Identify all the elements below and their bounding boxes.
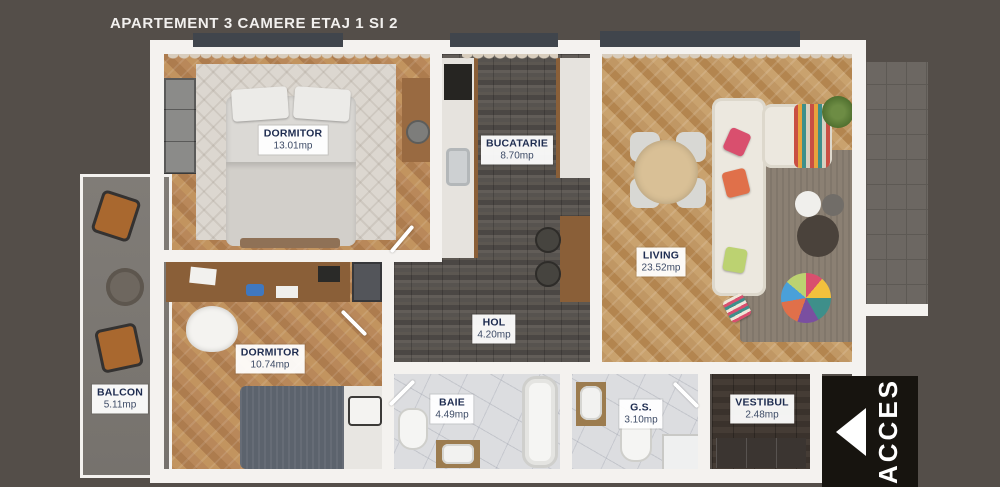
sink-gs [580, 386, 602, 420]
stove [444, 64, 472, 100]
window-bucatarie [450, 33, 558, 47]
room-area: 5.11mp [97, 400, 143, 411]
room-label-vestibul: VESTIBUL 2.48mp [730, 395, 794, 424]
wall-bucatarie-living [590, 40, 602, 374]
desk-item-blue [246, 284, 264, 296]
bed-pillow [293, 86, 351, 122]
sink-baie [442, 444, 474, 464]
kitchen-sink [446, 148, 470, 186]
curtain-bucatarie [462, 54, 558, 66]
room-name: BUCATARIE [486, 138, 548, 150]
bed-pillow [348, 396, 382, 426]
window-living [600, 31, 800, 47]
room-area: 3.10mp [624, 415, 657, 426]
wall-clock [406, 120, 430, 144]
cabinet-dormitor-2 [352, 262, 382, 302]
room-label-baie: BAIE 4.49mp [430, 395, 473, 424]
room-floor-hol [394, 262, 442, 362]
room-area: 2.48mp [735, 410, 789, 421]
room-area: 10.74mp [241, 360, 300, 371]
coffee-table-dark [797, 215, 839, 257]
room-label-dormitor-2: DORMITOR 10.74mp [236, 345, 305, 374]
bed-pillow [231, 86, 289, 122]
wall-right-living [852, 40, 866, 378]
wall-baie-gs [560, 362, 572, 483]
window-dormitor-1 [193, 33, 343, 47]
wall-dormitor1-bottom [150, 250, 442, 262]
floor-plan-canvas: APARTEMENT 3 CAMERE ETAJ 1 SI 2 [0, 0, 1000, 487]
bed-bench [240, 238, 340, 248]
curtain-living [602, 54, 852, 66]
room-name: BAIE [435, 397, 468, 409]
kitchen-bar [560, 216, 590, 302]
balcony-chair [94, 322, 144, 374]
bed-dormitor-2-blanket [240, 386, 344, 469]
desk-notepad [276, 286, 298, 298]
access-label: ACCES [873, 378, 904, 484]
room-area: 8.70mp [486, 151, 548, 162]
room-name: DORMITOR [264, 128, 323, 140]
room-area: 23.52mp [642, 263, 681, 274]
wall-dormitor1-bucatarie [430, 40, 442, 262]
sofa-pillow [722, 246, 748, 273]
room-name: G.S. [624, 402, 657, 414]
room-name: VESTIBUL [735, 397, 789, 409]
room-label-gs: G.S. 3.10mp [619, 400, 662, 429]
toilet-baie [398, 408, 428, 450]
room-area: 4.49mp [435, 410, 468, 421]
wall-living-bottom [590, 362, 866, 374]
wall-terrace-bottom [866, 304, 928, 316]
wall-gs-vestibul [698, 362, 710, 483]
access-zone: ACCES [822, 376, 918, 487]
coffee-table-white [795, 191, 821, 217]
wall-bottom [150, 469, 834, 483]
room-label-dormitor-1: DORMITOR 13.01mp [259, 126, 328, 155]
room-label-balcon: BALCON 5.11mp [92, 385, 148, 414]
coffee-table-gray [822, 194, 844, 216]
room-label-bucatarie: BUCATARIE 8.70mp [481, 136, 553, 165]
room-label-hol: HOL 4.20mp [472, 315, 515, 344]
bathtub [522, 376, 558, 468]
desk-paper [189, 267, 217, 286]
room-label-living: LIVING 23.52mp [637, 248, 686, 277]
room-area: 4.20mp [477, 330, 510, 341]
pouf [781, 273, 831, 323]
page-title: APARTEMENT 3 CAMERE ETAJ 1 SI 2 [110, 15, 398, 32]
bar-stool [535, 227, 561, 253]
wall-vestibul-right [810, 362, 822, 483]
room-area: 13.01mp [264, 141, 323, 152]
kitchen-counter-right [556, 58, 594, 178]
room-name: BALCON [97, 387, 143, 399]
desk-laptop [318, 266, 340, 282]
curtain-dormitor-1 [168, 54, 430, 66]
room-name: HOL [477, 317, 510, 329]
dining-table [634, 140, 698, 204]
wardrobe-dormitor-1 [164, 78, 196, 174]
room-name: DORMITOR [241, 347, 300, 359]
bar-stool [535, 261, 561, 287]
room-name: LIVING [642, 250, 681, 262]
bed-blanket [226, 162, 356, 246]
plant [822, 96, 854, 128]
side-terrace-tiles [866, 62, 928, 310]
balcony-table [106, 268, 144, 306]
access-arrow-icon [836, 408, 866, 456]
desk-chair [186, 306, 238, 352]
shoe-cabinet [716, 438, 806, 468]
